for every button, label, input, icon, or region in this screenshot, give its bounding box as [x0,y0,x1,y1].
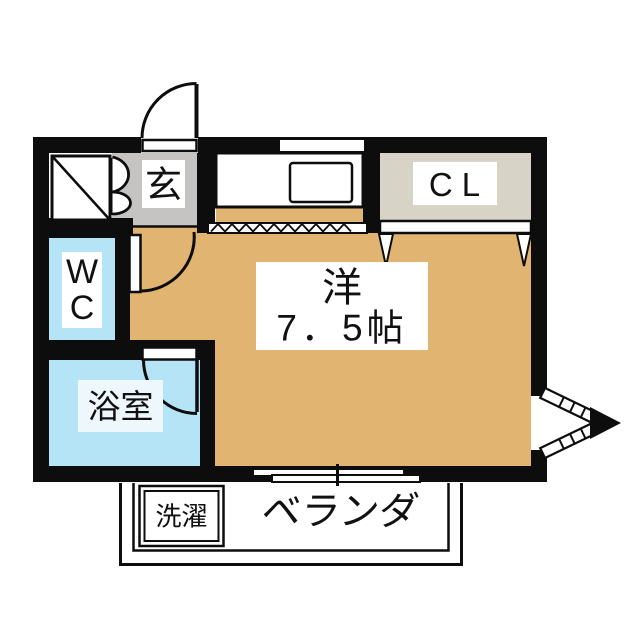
closet-label: CL [429,166,489,203]
kitchen-floor-strip [216,207,363,223]
toilet-label-line1: W [66,253,98,291]
floor-plan-canvas: 玄 CL W C 浴室 洋 7．5帖 ベランダ 洗濯 [0,0,640,640]
right-wall-opening [531,396,547,450]
bathroom-door-threshold [143,348,197,360]
veranda-label: ベランダ [259,491,421,534]
living-room-name: 洋 [322,266,362,310]
shoe-cabinet [52,156,131,220]
toilet-label-line2: C [70,289,95,327]
living-door-leaf [130,235,141,292]
entrance-threshold [143,140,197,151]
laundry-label: 洗濯 [155,502,207,532]
bathroom-label: 浴室 [88,388,154,425]
wall-bathroom-right [200,345,215,466]
balcony-window-lower [272,475,420,482]
entry-step-floor [133,227,197,238]
wall-kitchen-left [197,153,215,233]
entry-label: 玄 [145,165,182,206]
kitchen-sink [290,163,352,202]
wall-kitchen-closet [363,153,380,233]
living-room-size: 7．5帖 [276,308,407,349]
kitchen-window [280,140,364,151]
closet-door-track [380,221,531,233]
floor-plan-drawing: 玄 CL W C 浴室 洋 7．5帖 ベランダ 洗濯 [0,0,640,640]
wall-left [33,137,49,482]
